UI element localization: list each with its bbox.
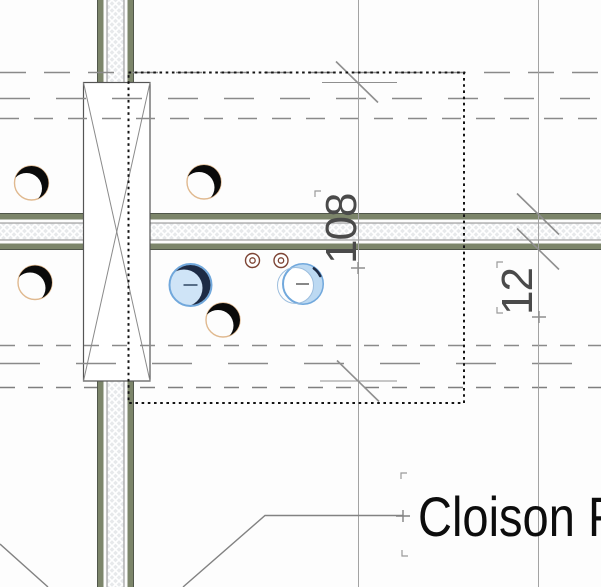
- outer-ring: [246, 254, 260, 268]
- text-note-cloison[interactable]: Cloison F: [418, 489, 601, 545]
- insulation-hatch: [108, 0, 124, 83]
- ring-marker-2[interactable]: [274, 254, 288, 268]
- hole-shadow-crescent: [187, 165, 221, 199]
- hole-shadow-crescent: [15, 166, 49, 200]
- insulation-hatch: [149, 224, 601, 240]
- text-corner-mark: [402, 550, 408, 556]
- insulation-hatch: [0, 224, 84, 240]
- hole-symbol-2[interactable]: [18, 266, 52, 300]
- dimension-text-12[interactable]: 12: [496, 268, 540, 315]
- wall-horizontal-left[interactable]: [0, 213, 84, 250]
- text-corner-mark: [401, 473, 407, 479]
- hole-symbol-4[interactable]: [206, 303, 240, 337]
- hole-shadow-crescent: [206, 303, 240, 337]
- outer-ring: [274, 254, 288, 268]
- dimension-text-108[interactable]: 108: [320, 194, 364, 264]
- column-cross-symbol[interactable]: [84, 83, 151, 382]
- selected-hole-symbol-1[interactable]: [170, 264, 212, 306]
- ring-marker-1[interactable]: [246, 254, 260, 268]
- drawing-canvas[interactable]: 108 12 Cloison F: [0, 0, 601, 587]
- insulation-hatch: [108, 380, 124, 587]
- leader-offscreen[interactable]: [0, 544, 48, 587]
- note-leader[interactable]: [183, 473, 410, 587]
- leader-polyline: [183, 516, 403, 587]
- leader-end-cross: [396, 510, 410, 522]
- hole-symbol-3[interactable]: [187, 165, 221, 199]
- wall-vertical-top[interactable]: [97, 0, 134, 83]
- hole-symbol-1[interactable]: [15, 166, 49, 200]
- wall-vertical-bottom[interactable]: [97, 380, 134, 587]
- hole-shadow-crescent: [18, 266, 52, 300]
- selected-hole-symbol-2[interactable]: [278, 264, 324, 304]
